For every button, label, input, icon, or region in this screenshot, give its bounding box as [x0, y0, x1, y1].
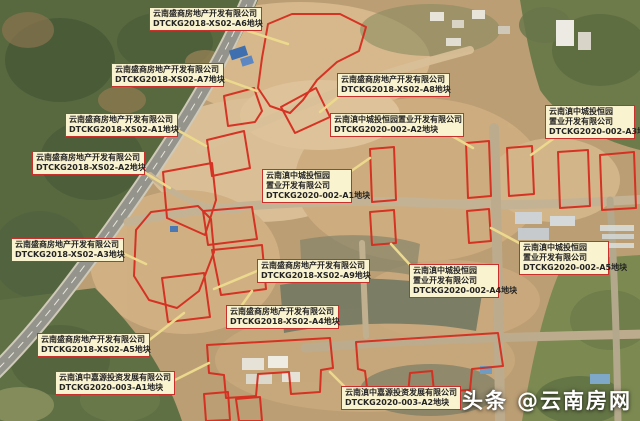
watermark-brand: 头条 — [462, 385, 508, 415]
parcel-label-002-a5: 云南滇中城投恒园 置业开发有限公司 DTCKG2020-002-A5地块 — [519, 241, 609, 275]
parcel-label-003-a1: 云南滇中嘉源投资发展有限公司 DTCKG2020-003-A1地块 — [55, 371, 175, 395]
company-name: 云南盛商房地产开发有限公司 — [36, 153, 141, 163]
company-name: 云南盛商房地产开发有限公司 — [153, 9, 258, 19]
company-name: 云南盛商房地产开发有限公司 — [261, 261, 366, 271]
watermark-handle: @云南房网 — [517, 385, 632, 415]
company-name: 云南盛商房地产开发有限公司 — [230, 307, 335, 317]
company-name: 置业开发有限公司 — [413, 276, 495, 286]
plot-code: DTCKG2020-002-A1地块 — [266, 191, 348, 201]
company-name: 云南滇中城投恒园 — [413, 266, 495, 276]
parcel-label-xs02-a7: 云南盛商房地产开发有限公司 DTCKG2018-XS02-A7地块 — [111, 63, 224, 87]
satellite-annotation-map: 云南盛商房地产开发有限公司 DTCKG2018-XS02-A6地块 云南盛商房地… — [0, 0, 640, 421]
company-name: 云南滇中嘉源投资发展有限公司 — [59, 373, 171, 383]
company-name: 云南滇中城投恒园 — [549, 107, 631, 117]
company-name: 云南盛商房地产开发有限公司 — [341, 75, 446, 85]
company-name: 云南盛商房地产开发有限公司 — [69, 115, 174, 125]
plot-code: DTCKG2018-XS02-A8地块 — [341, 85, 446, 95]
parcel-label-xs02-a3: 云南盛商房地产开发有限公司 DTCKG2018-XS02-A3地块 — [11, 238, 124, 262]
company-name: 云南滇中城投恒园置业开发有限公司 — [334, 115, 460, 125]
plot-code: DTCKG2018-XS02-A2地块 — [36, 163, 141, 173]
parcel-label-xs02-a8: 云南盛商房地产开发有限公司 DTCKG2018-XS02-A8地块 — [337, 73, 450, 97]
plot-code: DTCKG2018-XS02-A7地块 — [115, 75, 220, 85]
plot-code: DTCKG2020-002-A2地块 — [334, 125, 460, 135]
company-name: 云南滇中嘉源投资发展有限公司 — [345, 388, 457, 398]
parcel-label-002-a3: 云南滇中城投恒园 置业开发有限公司 DTCKG2020-002-A3地块 — [545, 105, 635, 139]
parcel-label-002-a4: 云南滇中城投恒园 置业开发有限公司 DTCKG2020-002-A4地块 — [409, 264, 499, 298]
company-name: 置业开发有限公司 — [266, 181, 348, 191]
plot-code: DTCKG2020-002-A4地块 — [413, 286, 495, 296]
plot-code: DTCKG2018-XS02-A5地块 — [41, 345, 146, 355]
parcel-label-002-a1: 云南滇中城投恒园 置业开发有限公司 DTCKG2020-002-A1地块 — [262, 169, 352, 203]
plot-code: DTCKG2020-002-A5地块 — [523, 263, 605, 273]
parcel-label-002-a2: 云南滇中城投恒园置业开发有限公司 DTCKG2020-002-A2地块 — [330, 113, 464, 137]
company-name: 云南滇中城投恒园 — [266, 171, 348, 181]
company-name: 置业开发有限公司 — [523, 253, 605, 263]
road-mid — [362, 243, 366, 336]
plot-code: DTCKG2020-003-A1地块 — [59, 383, 171, 393]
company-name: 云南滇中城投恒园 — [523, 243, 605, 253]
parcel-label-xs02-a1: 云南盛商房地产开发有限公司 DTCKG2018-XS02-A1地块 — [65, 113, 178, 137]
plot-code: DTCKG2018-XS02-A1地块 — [69, 125, 174, 135]
plot-code: DTCKG2020-002-A3地块 — [549, 127, 631, 137]
plot-code: DTCKG2018-XS02-A3地块 — [15, 250, 120, 260]
parcel-label-003-a2: 云南滇中嘉源投资发展有限公司 DTCKG2020-003-A2地块 — [341, 386, 461, 410]
plot-code: DTCKG2020-003-A2地块 — [345, 398, 457, 408]
plot-code: DTCKG2018-XS02-A4地块 — [230, 317, 335, 327]
plot-code: DTCKG2018-XS02-A6地块 — [153, 19, 258, 29]
company-name: 云南盛商房地产开发有限公司 — [41, 335, 146, 345]
watermark: 头条 @云南房网 — [462, 385, 632, 415]
company-name: 置业开发有限公司 — [549, 117, 631, 127]
parcel-label-xs02-a2: 云南盛商房地产开发有限公司 DTCKG2018-XS02-A2地块 — [32, 151, 145, 175]
plot-code: DTCKG2018-XS02-A9地块 — [261, 271, 366, 281]
company-name: 云南盛商房地产开发有限公司 — [115, 65, 220, 75]
parcel-label-xs02-a4: 云南盛商房地产开发有限公司 DTCKG2018-XS02-A4地块 — [226, 305, 339, 329]
parcel-label-xs02-a6: 云南盛商房地产开发有限公司 DTCKG2018-XS02-A6地块 — [149, 7, 262, 31]
parcel-label-xs02-a5: 云南盛商房地产开发有限公司 DTCKG2018-XS02-A5地块 — [37, 333, 150, 357]
parcel-label-xs02-a9: 云南盛商房地产开发有限公司 DTCKG2018-XS02-A9地块 — [257, 259, 370, 283]
company-name: 云南盛商房地产开发有限公司 — [15, 240, 120, 250]
satellite-map-canvas — [0, 0, 640, 421]
